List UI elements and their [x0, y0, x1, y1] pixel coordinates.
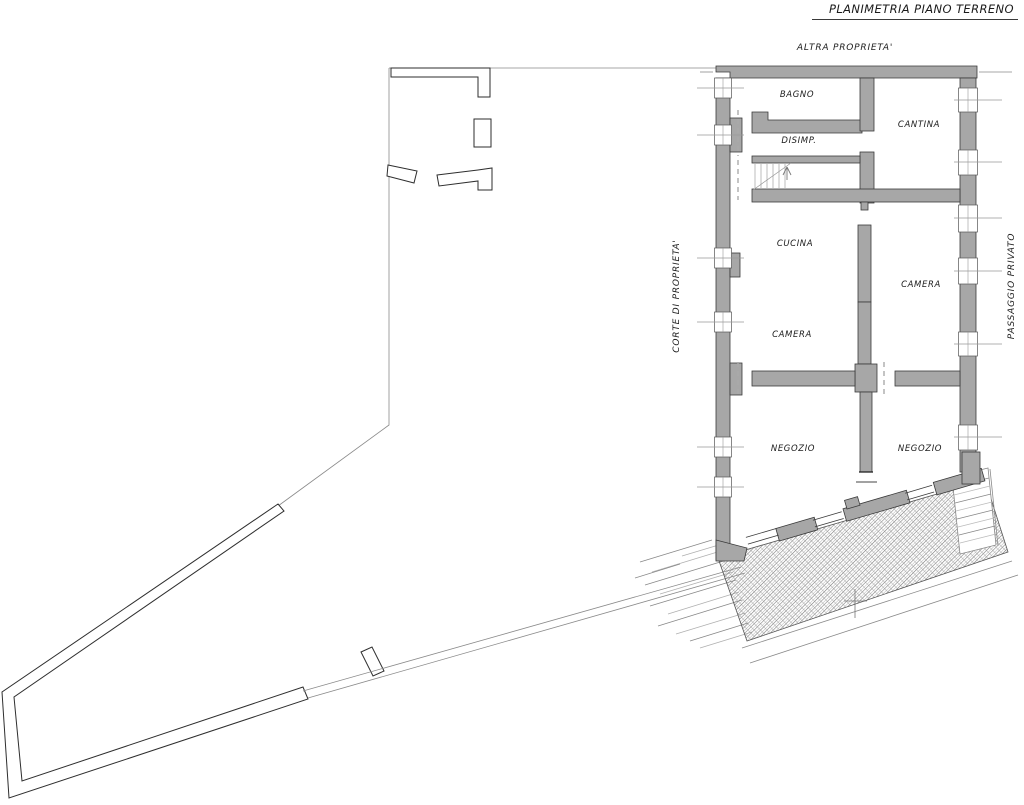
wall-stair-top: [752, 156, 860, 163]
room-label-camera-right: CAMERA: [881, 280, 961, 290]
building-walls: [716, 66, 985, 561]
room-label-bagno: BAGNO: [757, 90, 837, 100]
room-label-negozio-left: NEGOZIO: [753, 444, 833, 454]
staircase: [753, 163, 791, 190]
stair-direction-arrow: [783, 167, 791, 180]
room-label-camera-left: CAMERA: [752, 330, 832, 340]
wall-cucina-right: [858, 225, 871, 302]
room-label-disimp: DISIMP.: [759, 136, 839, 146]
room-label-cucina: CUCINA: [755, 239, 835, 249]
corner-pier: [962, 452, 980, 484]
wall-camera-right-bottom: [895, 371, 960, 386]
wall-spine-top: [860, 78, 874, 131]
label-corte-di-proprieta: CORTE DI PROPRIETA': [672, 231, 682, 361]
boundary-wall-wedge: [2, 504, 384, 798]
wall-negozio-divider: [860, 392, 872, 472]
floor-plan-page: PLANIMETRIA PIANO TERRENO ALTRA PROPRIET…: [0, 0, 1024, 805]
wall-corridor: [752, 189, 960, 202]
label-passaggio-privato: PASSAGGIO PRIVATO: [1007, 221, 1017, 351]
wall-bagno: [752, 112, 862, 133]
drawing-title: PLANIMETRIA PIANO TERRENO: [812, 2, 1018, 20]
label-altra-proprieta: ALTRA PROPRIETA': [770, 43, 920, 53]
room-label-cantina: CANTINA: [879, 120, 959, 130]
outbuilding-walls: [387, 68, 492, 190]
wall-top: [716, 66, 977, 78]
room-label-negozio-right: NEGOZIO: [880, 444, 960, 454]
floor-plan-drawing: [0, 0, 1024, 805]
wall-camera-left-bottom: [752, 371, 855, 386]
